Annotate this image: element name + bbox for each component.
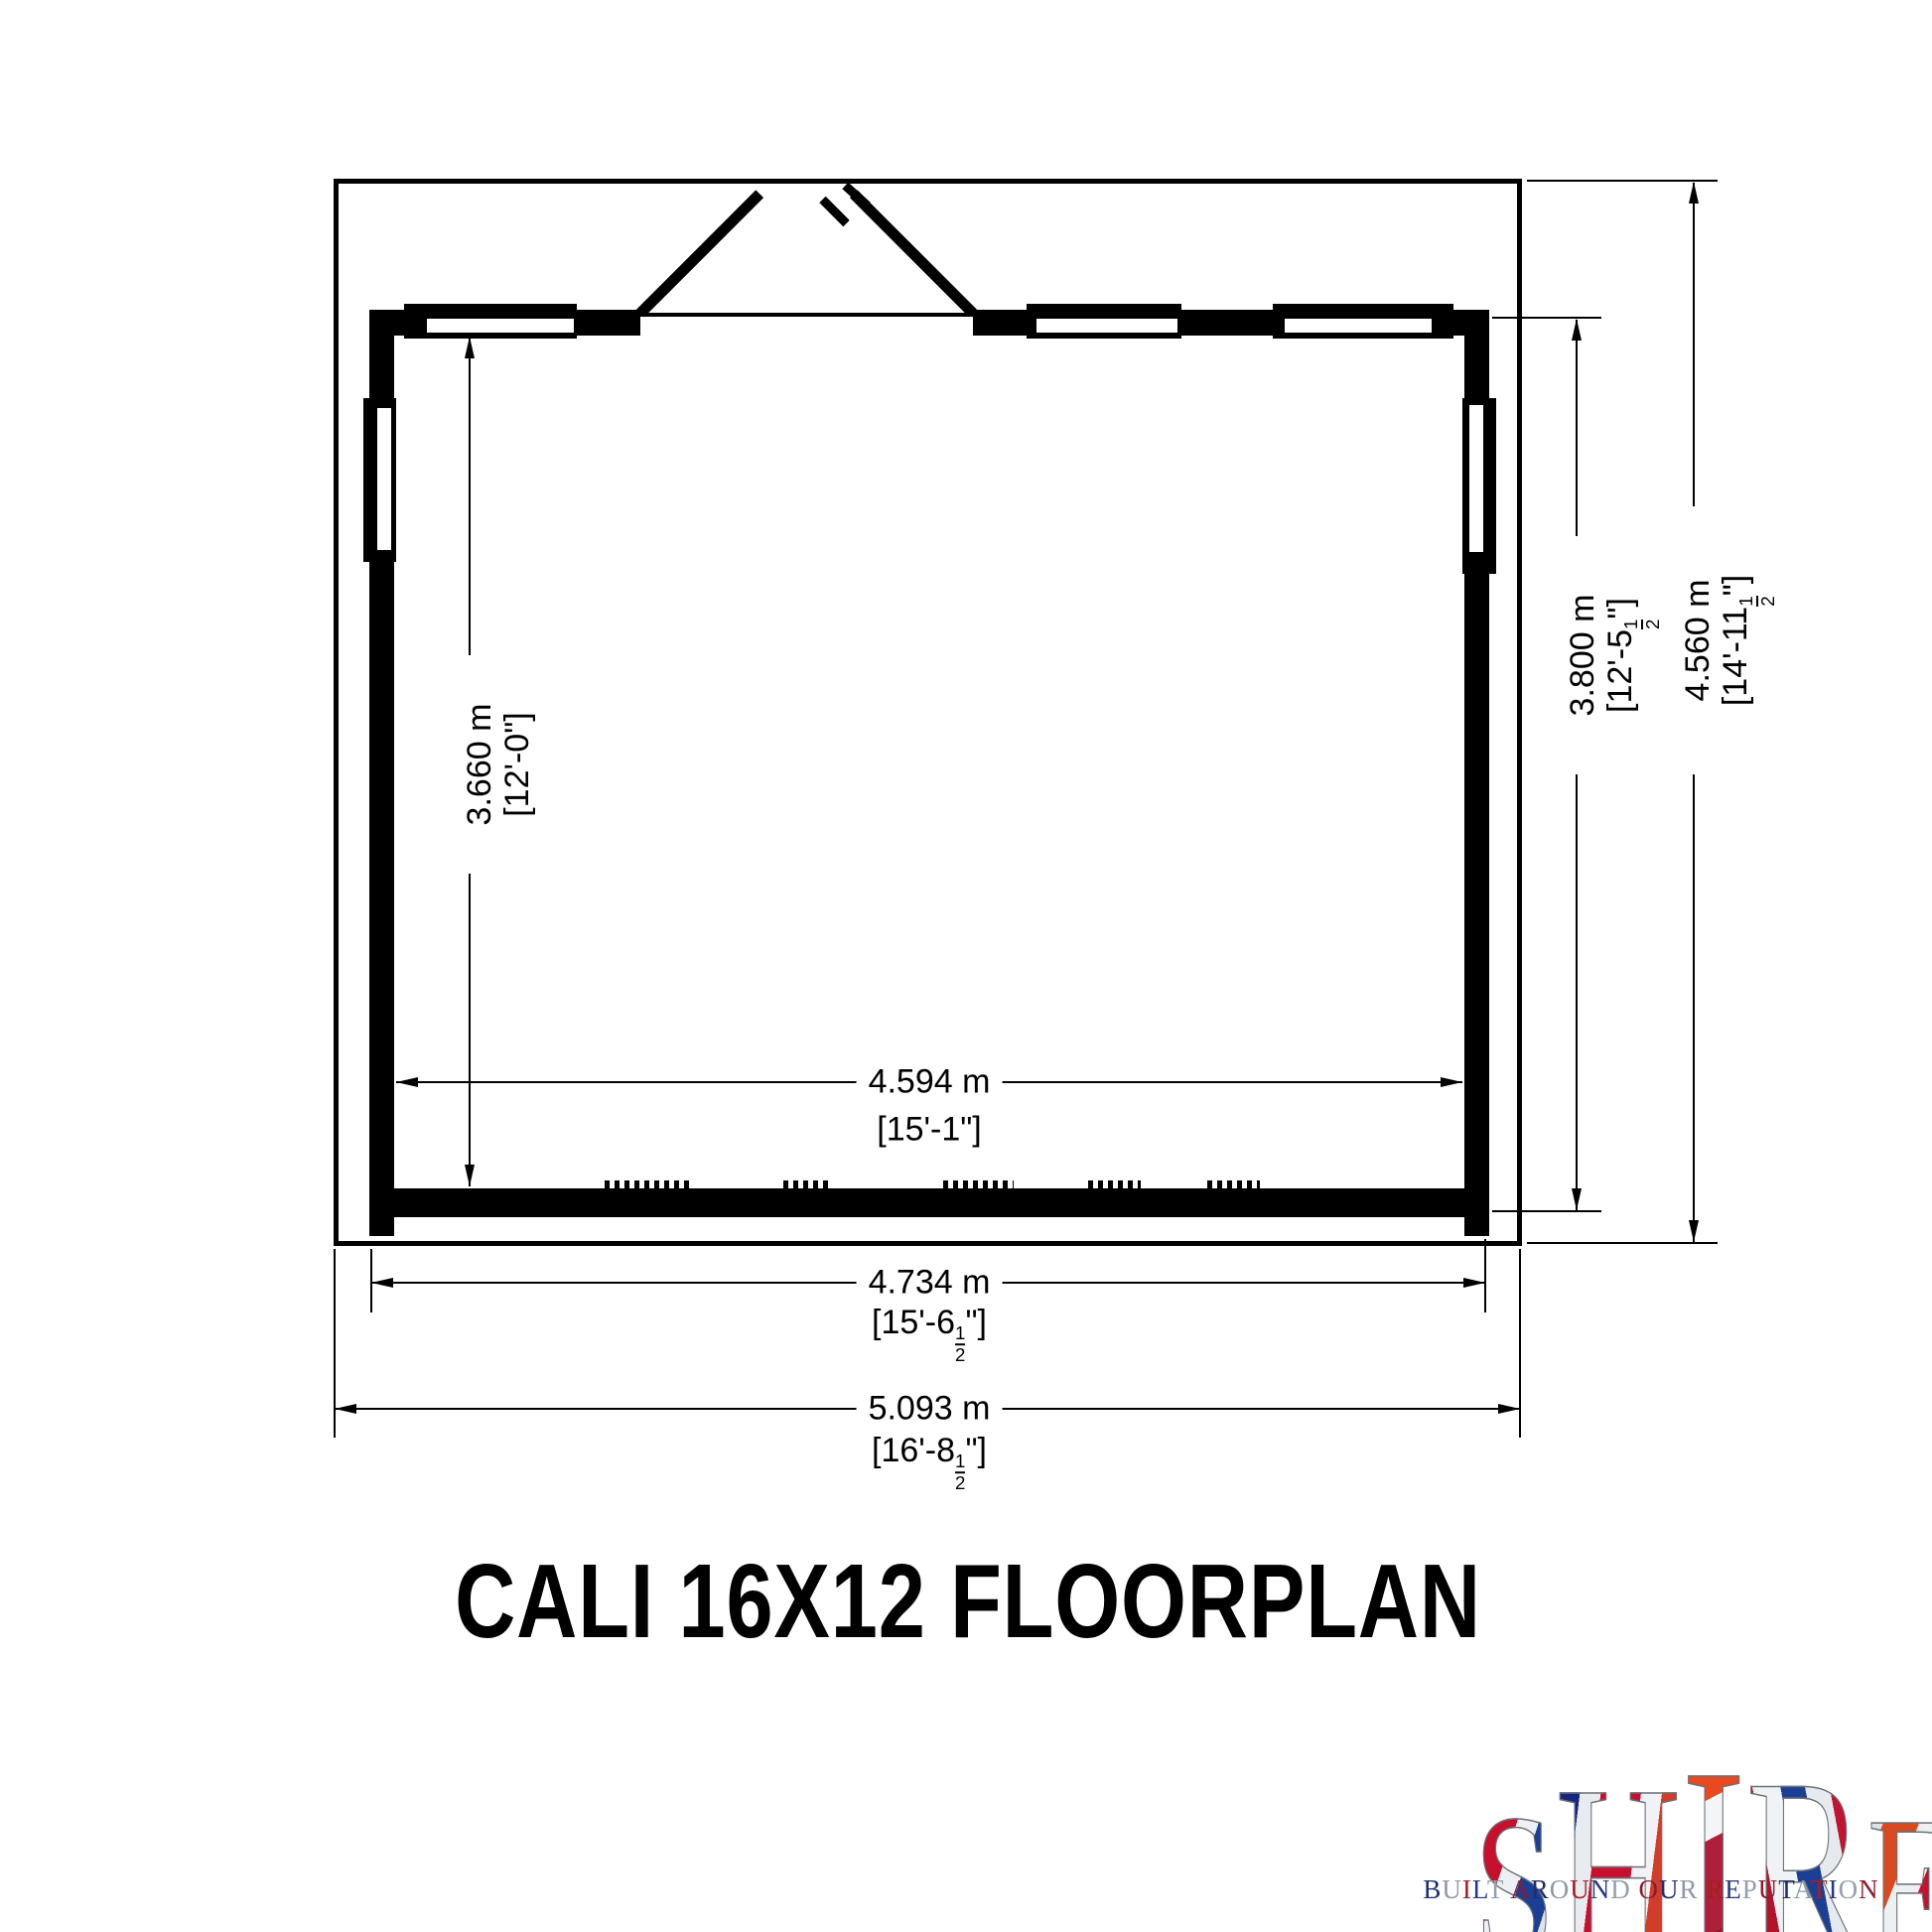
dim-ext-building-width-right — [1484, 1239, 1486, 1312]
dim-arrow-left — [335, 1404, 356, 1414]
door-threshold-line — [640, 313, 973, 317]
window-glass-top-3 — [1285, 319, 1432, 333]
dim-metric-interior-depth: 3.660 m — [461, 655, 498, 874]
dim-arrow-left — [371, 1278, 393, 1288]
floor-hatch-ticks — [605, 1180, 694, 1189]
dim-imperial-building-depth: [12'-512"] — [1601, 536, 1663, 774]
dim-imperial-overall-depth: [14'-1112"] — [1717, 506, 1778, 774]
dim-imperial-interior-width: [15'-1"] — [877, 1111, 982, 1150]
logo-letter: S — [1474, 1772, 1556, 1932]
floor-hatch-ticks — [943, 1180, 1014, 1189]
floor-hatch-ticks — [1207, 1180, 1260, 1189]
dim-arrow-right — [1498, 1404, 1520, 1414]
dim-metric-overall-depth: 4.560 m — [1679, 506, 1717, 774]
dim-metric-building-depth: 3.800 m — [1564, 536, 1601, 774]
stacked-fraction: 12 — [955, 1324, 965, 1365]
doorway-opening — [640, 306, 973, 339]
dim-label-building-depth: 3.800 m [12'-512"] — [1564, 536, 1639, 774]
shire-logo: SHIRE BUILT AROUND OUR REPUTATION — [1398, 1674, 1904, 1912]
window-glass-right — [1469, 405, 1483, 552]
dim-arrow-up — [1689, 182, 1699, 204]
floor-hatch-ticks — [1088, 1180, 1141, 1189]
logo-tagline: BUILT AROUND OUR REPUTATION — [1398, 1874, 1904, 1905]
window-glass-top-2 — [1036, 319, 1177, 333]
dim-arrow-up — [1572, 319, 1582, 341]
dim-arrow-down — [465, 1165, 475, 1186]
dim-ext-overall-depth-bottom — [1527, 1242, 1718, 1244]
dim-label-interior-depth: 3.660 m [12'-0"] — [461, 655, 536, 874]
floorplan-canvas: 3.660 m [12'-0"] 4.594 m [15'-1"] 3.800 … — [0, 0, 1932, 1932]
dim-arrow-down — [1572, 1188, 1582, 1210]
dim-arrow-up — [465, 337, 475, 358]
dim-arrow-right — [1463, 1278, 1485, 1288]
dim-metric-building-width: 4.734 m — [857, 1264, 1003, 1303]
window-glass-left — [377, 408, 391, 550]
dim-arrow-left — [396, 1077, 418, 1087]
page-title: CALI 16X12 FLOORPLAN — [455, 1542, 1481, 1662]
stacked-fraction: 12 — [1621, 620, 1662, 629]
dim-label-overall-depth: 4.560 m [14'-1112"] — [1679, 506, 1754, 774]
floor-hatch-ticks — [783, 1180, 832, 1189]
stacked-fraction: 12 — [955, 1452, 965, 1493]
dim-arrow-down — [1689, 1220, 1699, 1242]
dim-metric-interior-width: 4.594 m — [857, 1063, 1003, 1102]
wall-bottom — [394, 1188, 1464, 1213]
dim-ext-building-depth-bottom — [1492, 1210, 1601, 1212]
dim-imperial-interior-depth: [12'-0"] — [498, 655, 536, 874]
dim-imperial-overall-width: [16'-812"] — [872, 1432, 987, 1493]
window-glass-top-1 — [427, 319, 574, 333]
dim-metric-overall-width: 5.093 m — [857, 1390, 1003, 1429]
logo-letter: E — [1867, 1774, 1932, 1932]
wall-bottom-sill-line — [369, 1213, 1489, 1217]
dim-ext-building-depth-top — [1492, 317, 1601, 319]
stacked-fraction: 12 — [1736, 596, 1777, 606]
dim-arrow-right — [1441, 1077, 1462, 1087]
dim-imperial-building-width: [15'-612"] — [872, 1304, 987, 1365]
